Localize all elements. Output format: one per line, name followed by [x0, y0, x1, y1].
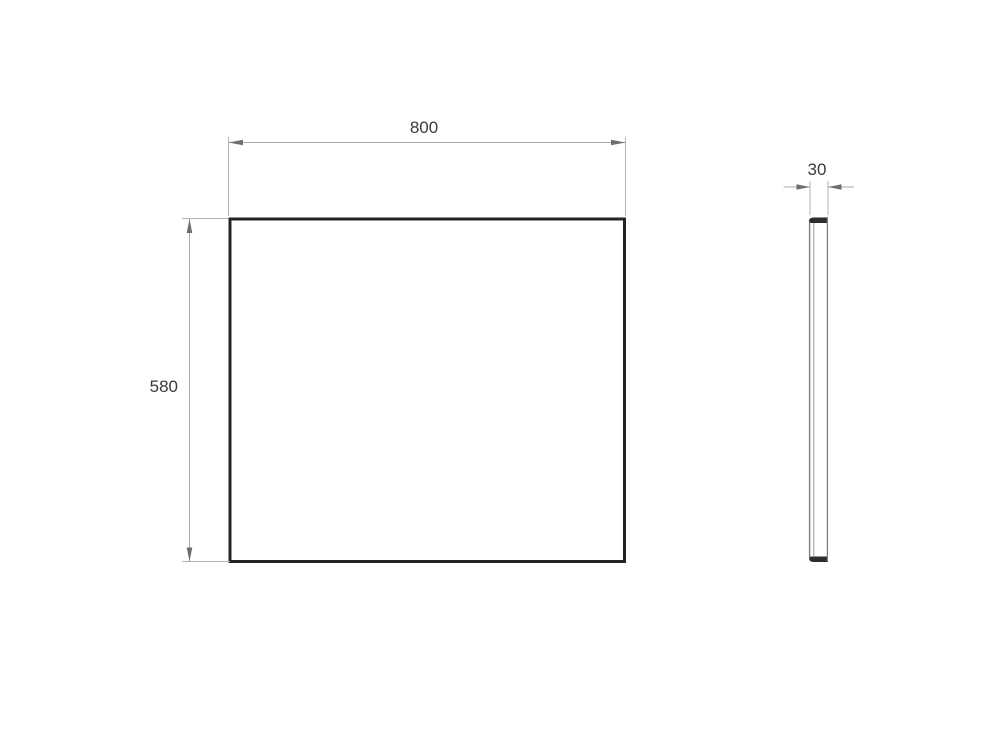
side-view-body [809, 218, 828, 563]
front-view [230, 219, 625, 562]
width-arrow-left [229, 140, 244, 146]
depth-arrow-left [797, 184, 811, 189]
side-view-bottom-cap [809, 557, 828, 563]
width-arrow-right [611, 140, 626, 146]
depth-arrow-right [828, 184, 842, 189]
dimension-depth: 30 [784, 160, 855, 215]
drawing-canvas: 800 580 30 [0, 0, 1000, 738]
width-dimension-label: 800 [410, 118, 438, 137]
dimension-height: 580 [150, 219, 230, 562]
height-arrow-bottom [187, 548, 193, 562]
depth-dimension-label: 30 [808, 160, 827, 179]
height-dimension-label: 580 [150, 377, 178, 396]
front-view-outline [230, 219, 625, 562]
side-view [809, 218, 828, 563]
dimension-width: 800 [229, 118, 626, 216]
technical-drawing: 800 580 30 [0, 0, 1000, 738]
height-arrow-top [187, 219, 193, 233]
side-view-top-cap [809, 218, 828, 224]
